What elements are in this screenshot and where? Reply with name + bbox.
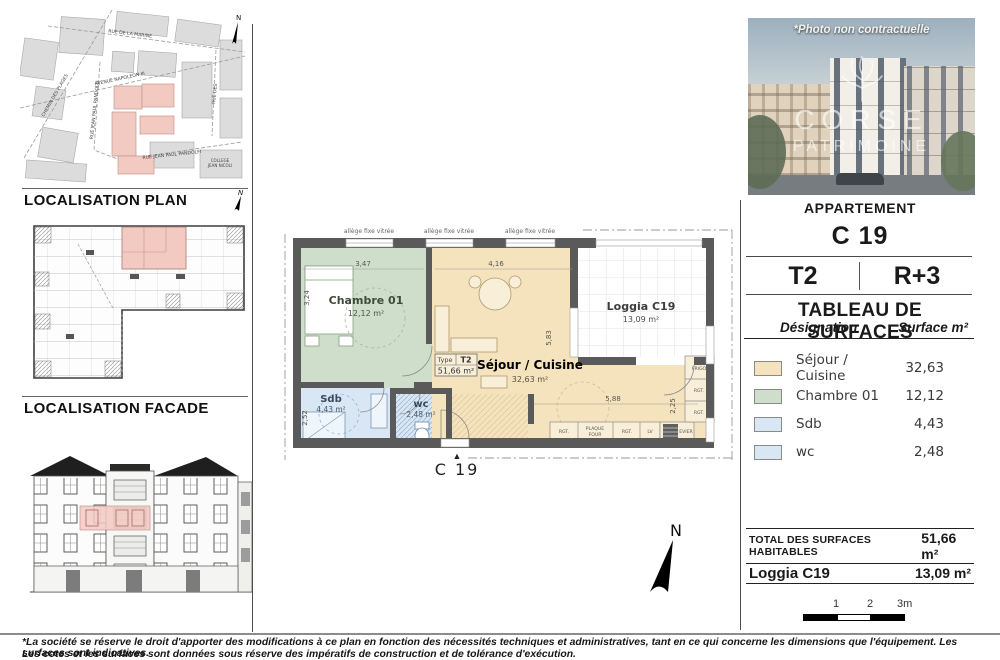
table-header-row: Désignation Surface m² [746, 320, 974, 335]
loggia-label: Loggia C19 [749, 565, 830, 582]
label-loggia: Loggia C19 [607, 300, 676, 313]
row-label: Chambre 01 [796, 388, 892, 404]
kitchen-plaque-1: PLAQUE [586, 426, 604, 432]
kitchen-lv: LV [647, 429, 653, 435]
label-sdb: Sdb [320, 394, 342, 405]
apartment-plan: RGT. PLAQUE FOUR RGT. LV EVIER FRIGO RGT… [283, 226, 735, 470]
scale-tick-3: 3m [897, 598, 912, 610]
type-floor-divider [859, 262, 860, 290]
type-floor-row: T2 R+3 [746, 260, 974, 292]
total-value: 51,66 m² [921, 530, 971, 562]
building-photo: *Photo non contractuelle CORSE PATRIMOIN… [748, 18, 975, 195]
svg-text:N: N [236, 14, 241, 22]
unit-number: C 19 [746, 222, 974, 251]
facade-highlight [80, 506, 150, 530]
plan-title-rule [22, 188, 248, 189]
total-label: TOTAL DES SURFACES HABITABLES [749, 534, 921, 558]
entrance-arrow-icon: ▲ [426, 452, 488, 460]
area-wc: 2,48 m² [406, 410, 435, 419]
type-box: Type T2 51,66 m² [435, 354, 477, 376]
type-box-area: 51,66 m² [438, 367, 474, 376]
area-loggia: 13,09 m² [623, 315, 659, 324]
brand-name-top: CORSE [794, 104, 929, 136]
apartment-heading: APPARTEMENT [746, 200, 974, 216]
dim-chambre-h: 3,24 [303, 290, 311, 306]
brand-watermark: CORSE PATRIMOINE [748, 56, 975, 156]
dim-sejour-w: 4,16 [488, 260, 504, 268]
loggia-value: 13,09 m² [915, 565, 971, 581]
kitchen-rgt-2: RGT. [622, 429, 632, 435]
dim-chambre-w: 3,47 [355, 260, 371, 268]
plan-north-arrow: N [640, 520, 690, 598]
floor-overview-plan [26, 214, 254, 390]
kitchen-rgt-4: RGT. [694, 410, 704, 416]
type-box-type: T2 [460, 356, 471, 365]
label-wc: wc [413, 399, 428, 410]
dim-kitchen-h: 2,25 [669, 398, 677, 414]
surfaces-table: Séjour / Cuisine 32,63 Chambre 01 12,12 … [746, 354, 974, 466]
svg-text:N: N [238, 189, 244, 197]
kitchen-evier: EVIER [679, 429, 693, 435]
plan-sheet: RUE DE LA MARINE AVENUE NAPOLEON III RUE… [0, 0, 1000, 660]
kitchen-rgt-3: RGT. [694, 388, 704, 394]
dim-kitchen-w: 5,88 [605, 395, 621, 403]
facade-elevation [26, 442, 254, 606]
overview-highlight [122, 227, 186, 269]
street-pandolfi-vertical: RUE JEAN PAUL PANDOLFI [89, 80, 101, 139]
photo-disclaimer: *Photo non contractuelle [748, 24, 975, 36]
map-north-arrow: N [232, 14, 241, 44]
type-box-label: Type [437, 356, 453, 364]
totals-block: TOTAL DES SURFACES HABITABLES 51,66 m² L… [746, 528, 974, 584]
rule-under-header [744, 338, 974, 339]
localisation-facade-title: LOCALISATION FACADE [24, 400, 209, 417]
college-label-2: JEAN NICOLI [207, 163, 232, 168]
row-value: 12,12 [892, 388, 944, 404]
row-value: 2,48 [892, 444, 944, 460]
allege-label-1: allège fixe vitrée [344, 228, 394, 235]
table-row: Sdb 4,43 [746, 410, 974, 438]
floor-value: R+3 [860, 260, 974, 292]
row-label: wc [796, 444, 892, 460]
kitchen-rgt-1: RGT. [559, 429, 569, 435]
swatch-chambre [754, 389, 782, 404]
rule-under-unit [746, 256, 972, 257]
scale-tick-1: 1 [833, 598, 839, 610]
col-designation: Désignation [780, 320, 857, 335]
swatch-sejour [754, 361, 782, 376]
allege-label-2: allège fixe vitrée [424, 228, 474, 235]
location-map: RUE DE LA MARINE AVENUE NAPOLEON III RUE… [20, 10, 246, 186]
row-value: 32,63 [892, 360, 944, 376]
entrance-marker: ▲ C 19 [426, 452, 488, 479]
north-letter: N [670, 521, 682, 540]
row-label: Séjour / Cuisine [796, 352, 892, 384]
col-surface: Surface m² [898, 320, 968, 335]
rule-under-type [746, 294, 972, 295]
brand-tree-icon [833, 56, 891, 102]
area-chambre: 12,12 m² [348, 309, 384, 318]
scale-tick-2: 2 [867, 598, 873, 610]
row-label: Sdb [796, 416, 892, 432]
footer-rule [0, 633, 1000, 635]
plan-title-north-icon: N [230, 188, 246, 212]
swatch-wc [754, 445, 782, 460]
allege-label-3: allège fixe vitrée [505, 228, 555, 235]
dim-sejour-h: 5,83 [545, 330, 553, 346]
label-chambre: Chambre 01 [329, 294, 404, 307]
facade-title-rule [22, 396, 248, 397]
area-sejour: 32,63 m² [512, 375, 548, 384]
label-sejour: Séjour / Cuisine [477, 358, 583, 372]
swatch-sdb [754, 417, 782, 432]
dim-sdb-h: 2,52 [301, 410, 309, 426]
area-sdb: 4,43 m² [316, 405, 345, 414]
scale-bar: 1 2 3m [795, 598, 925, 626]
row-value: 4,43 [892, 416, 944, 432]
table-row: Chambre 01 12,12 [746, 382, 974, 410]
kitchen-plaque-2: FOUR [589, 432, 603, 438]
type-value: T2 [746, 260, 860, 292]
brand-name-bottom: PATRIMOINE [793, 138, 930, 156]
disclaimer-line-2: Les cotes et les surfaces sont données s… [22, 649, 978, 660]
entrance-label: C 19 [426, 460, 488, 479]
table-row: wc 2,48 [746, 438, 974, 466]
table-row: Séjour / Cuisine 32,63 [746, 354, 974, 382]
right-panel-border [740, 200, 741, 630]
photo-car [836, 173, 884, 185]
localisation-plan-title: LOCALISATION PLAN [24, 192, 187, 209]
